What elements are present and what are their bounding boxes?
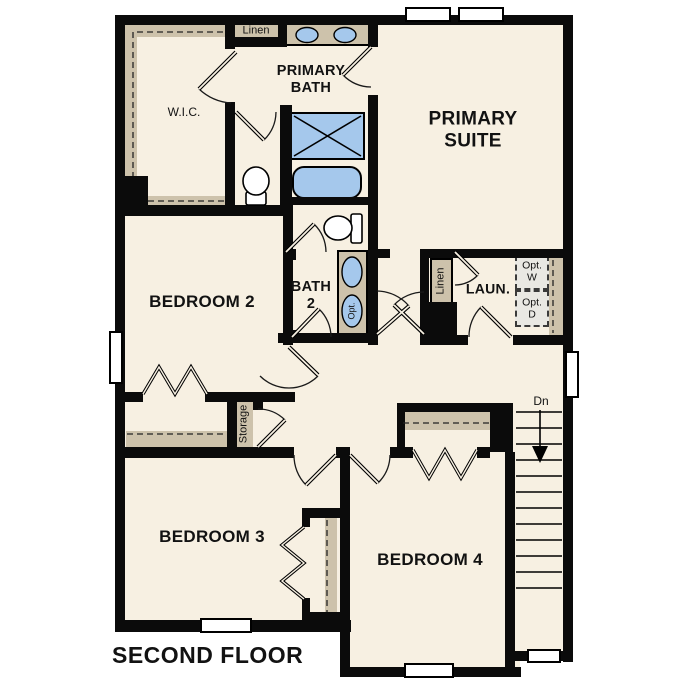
- wall: [115, 15, 125, 632]
- room-label-laundry-linen: Linen: [435, 268, 448, 295]
- bedroom4-closet-shelf: [402, 412, 490, 430]
- label-opt-dryer: Opt. D: [522, 297, 542, 322]
- wall: [340, 447, 350, 677]
- room-label-primary-bath: PRIMARY BATH: [277, 63, 345, 97]
- wall: [124, 176, 148, 208]
- wall: [368, 249, 390, 258]
- wall: [225, 102, 235, 216]
- wall: [283, 197, 378, 205]
- wic-shelf-top: [124, 24, 225, 37]
- room-label-bath2: BATH 2: [291, 279, 331, 313]
- window-bedroom3: [200, 618, 252, 633]
- room-label-bedroom4: BEDROOM 4: [377, 550, 483, 570]
- bedroom2-closet-shelf: [126, 431, 228, 447]
- label-opt-washer: Opt. W: [522, 260, 542, 285]
- wall: [283, 249, 296, 260]
- room-label-primary-suite: PRIMARY SUITE: [428, 109, 517, 154]
- bathtub: [292, 166, 362, 199]
- shower: [290, 112, 365, 160]
- label-opt-sink: Opt.: [347, 302, 358, 319]
- page-title: SECOND FLOOR: [112, 642, 303, 669]
- wall: [280, 105, 292, 205]
- room-label-bedroom2: BEDROOM 2: [149, 292, 255, 312]
- wall: [302, 508, 310, 527]
- window-bedroom2: [109, 331, 123, 384]
- wall: [420, 335, 468, 345]
- wall: [505, 452, 515, 667]
- wall: [302, 598, 310, 618]
- window-hall-right: [565, 351, 579, 398]
- wic-shelf-left: [124, 24, 137, 178]
- wall: [490, 403, 513, 452]
- wall: [397, 403, 405, 451]
- bedroom3-closet-shelf: [325, 518, 337, 614]
- wall: [368, 95, 378, 345]
- primary-bath-vanity: [287, 24, 372, 46]
- window-bedroom4: [404, 663, 454, 678]
- wall: [427, 249, 564, 258]
- wall: [115, 15, 573, 25]
- room-label-laundry: LAUN.: [466, 281, 510, 298]
- wall: [563, 15, 573, 662]
- room-label-wic: W.I.C.: [168, 105, 201, 119]
- window-stairs: [527, 649, 561, 663]
- wall: [115, 392, 143, 402]
- wall: [124, 205, 284, 216]
- wall: [253, 392, 263, 410]
- wall: [513, 335, 564, 345]
- laundry-counter: [549, 258, 564, 335]
- room-label-bedroom3: BEDROOM 3: [159, 527, 265, 547]
- wall: [420, 249, 429, 303]
- room-label-linen-top: Linen: [243, 25, 270, 38]
- window-primary-suite-1: [405, 7, 451, 22]
- label-stairs-down: Dn: [533, 394, 548, 408]
- wall: [397, 403, 490, 412]
- wall: [205, 392, 295, 402]
- wall: [368, 15, 378, 47]
- floor-plan: W.I.C. Linen PRIMARY BATH PRIMARY SUITE …: [0, 0, 687, 687]
- wall: [278, 333, 378, 343]
- wall: [477, 447, 490, 458]
- wall: [278, 15, 287, 39]
- bath2-vanity: [337, 250, 368, 335]
- wall: [283, 205, 293, 345]
- room-label-storage: Storage: [238, 405, 251, 444]
- wall: [124, 447, 294, 458]
- window-primary-suite-2: [458, 7, 504, 22]
